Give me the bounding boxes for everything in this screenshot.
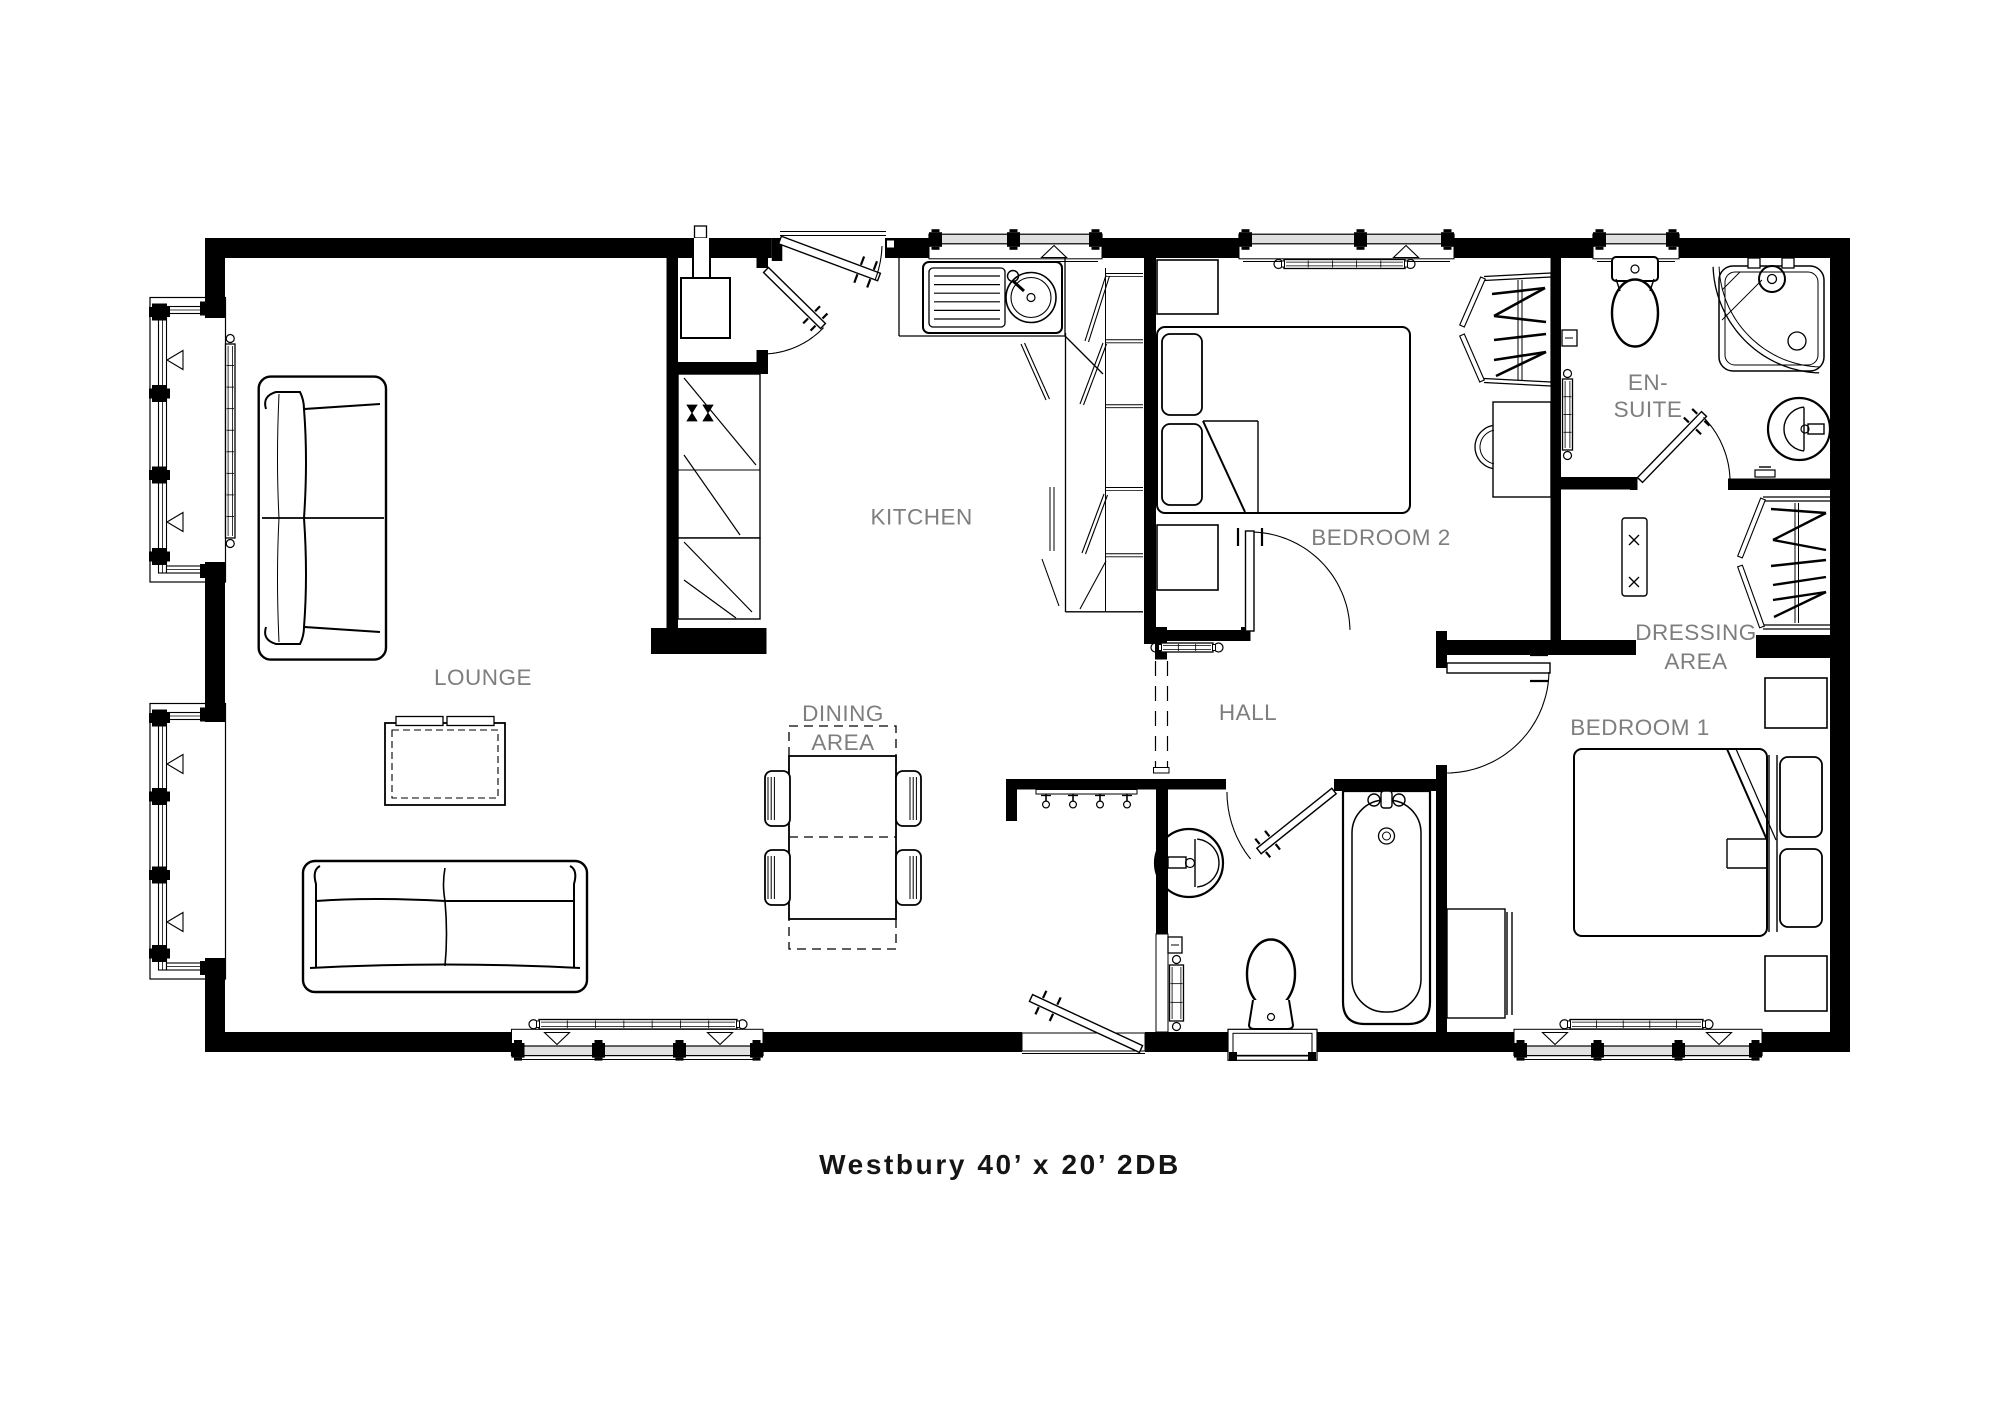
svg-text:DRESSING: DRESSING [1635, 620, 1757, 645]
svg-text:AREA: AREA [1664, 649, 1727, 674]
svg-text:Westbury 40’ x 20’ 2DB: Westbury 40’ x 20’ 2DB [819, 1149, 1181, 1180]
svg-text:EN-: EN- [1628, 370, 1668, 395]
svg-text:SUITE: SUITE [1614, 397, 1683, 422]
svg-text:HALL: HALL [1219, 700, 1277, 725]
svg-text:AREA: AREA [811, 730, 874, 755]
svg-text:BEDROOM 2: BEDROOM 2 [1311, 525, 1451, 550]
svg-text:LOUNGE: LOUNGE [434, 665, 532, 690]
svg-text:KITCHEN: KITCHEN [870, 505, 972, 530]
svg-text:DINING: DINING [802, 701, 884, 726]
svg-text:BEDROOM 1: BEDROOM 1 [1570, 715, 1710, 740]
